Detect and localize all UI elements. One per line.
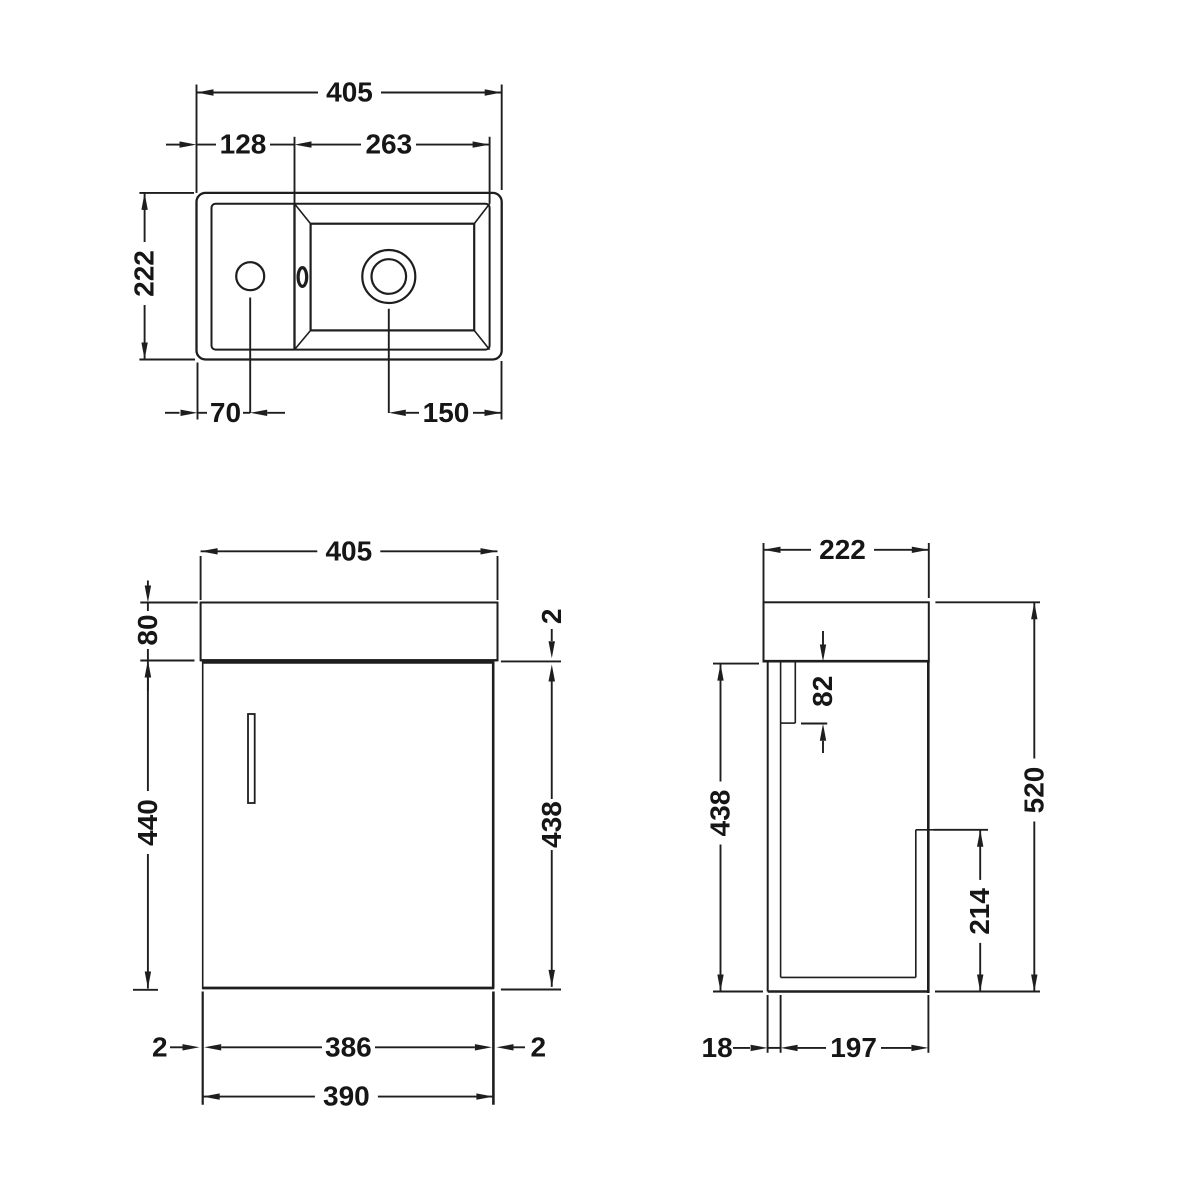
svg-text:438: 438 bbox=[536, 801, 567, 848]
svg-text:263: 263 bbox=[365, 129, 412, 160]
svg-text:405: 405 bbox=[326, 77, 373, 108]
svg-text:70: 70 bbox=[210, 397, 241, 428]
svg-text:440: 440 bbox=[132, 799, 163, 846]
svg-text:390: 390 bbox=[323, 1081, 370, 1112]
svg-text:438: 438 bbox=[705, 790, 736, 837]
svg-text:222: 222 bbox=[819, 534, 866, 565]
svg-text:150: 150 bbox=[423, 397, 470, 428]
svg-text:197: 197 bbox=[830, 1032, 877, 1063]
svg-text:520: 520 bbox=[1018, 767, 1049, 814]
svg-text:82: 82 bbox=[807, 676, 838, 707]
svg-text:386: 386 bbox=[325, 1031, 372, 1062]
svg-text:80: 80 bbox=[132, 614, 163, 645]
svg-text:2: 2 bbox=[536, 609, 567, 625]
svg-text:128: 128 bbox=[220, 129, 267, 160]
svg-text:18: 18 bbox=[702, 1032, 733, 1063]
svg-text:222: 222 bbox=[129, 250, 160, 297]
svg-text:2: 2 bbox=[152, 1031, 168, 1062]
svg-text:2: 2 bbox=[531, 1031, 547, 1062]
svg-text:214: 214 bbox=[964, 888, 995, 935]
svg-text:405: 405 bbox=[325, 535, 372, 566]
